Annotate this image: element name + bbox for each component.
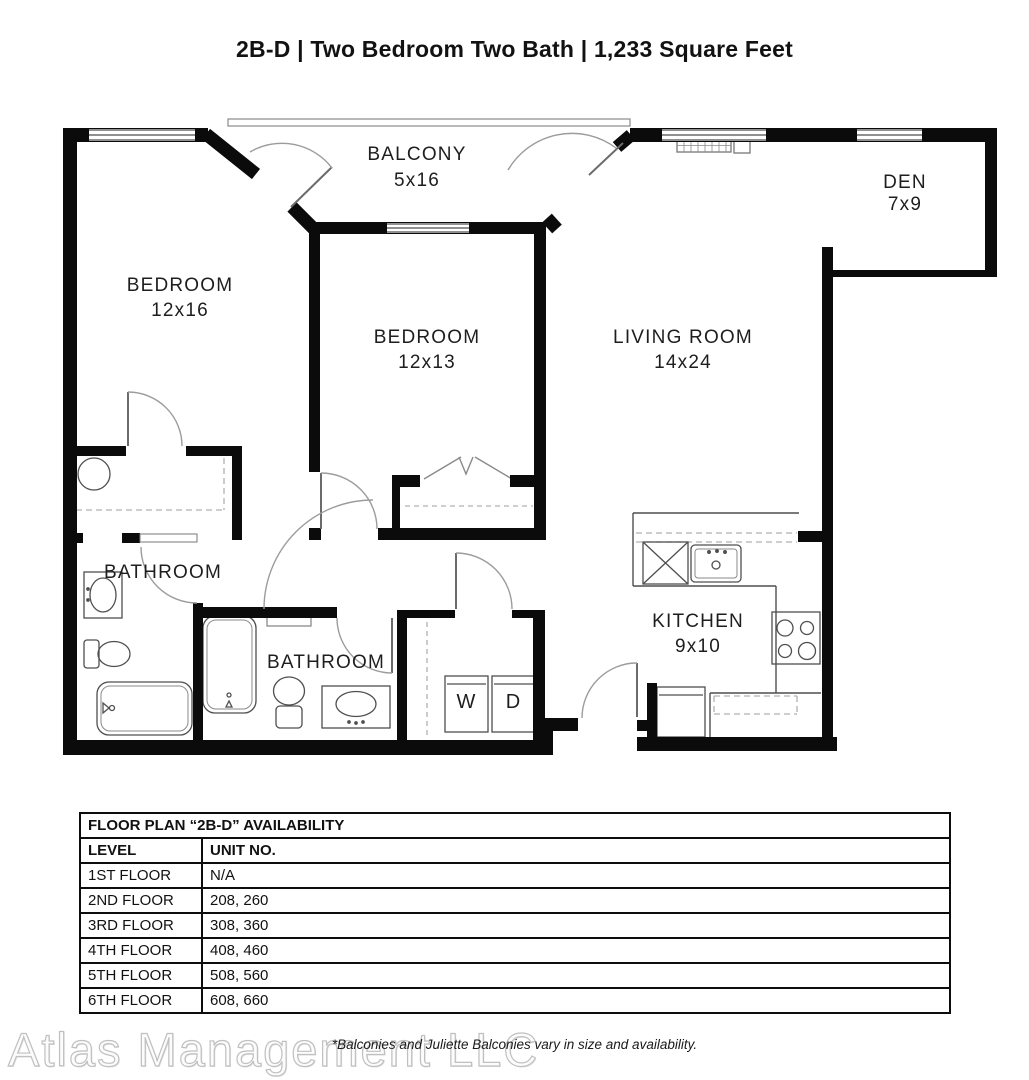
label-den-name: DEN [883,172,927,193]
unit-no-cell: 408, 460 [202,938,950,963]
bath2-toilet-bowl [274,677,305,705]
unit-no-cell: 208, 260 [202,888,950,913]
laundry-door-arc [456,553,512,609]
table-row: 6TH FLOOR608, 660 [80,988,950,1013]
unit-no-cell: N/A [202,863,950,888]
table-title: FLOOR PLAN “2B-D” AVAILABILITY [80,813,950,838]
label-washer: W [457,691,476,713]
label-kitchen-name: KITCHEN [652,611,744,632]
label-balcony-name: BALCONY [367,144,466,165]
floor-plan-page: 2B-D | Two Bedroom Two Bath | 1,233 Squa… [0,0,1029,1080]
unit-no-cell: 508, 560 [202,963,950,988]
table-row: 4TH FLOOR408, 460 [80,938,950,963]
label-living-dims: 14x24 [654,352,712,373]
window-bedroom1 [86,129,198,141]
bath1-tub [97,682,192,735]
footnote: *Balconies and Juliette Balconies vary i… [0,1037,1029,1052]
label-bedroom1-name: BEDROOM [127,275,234,296]
label-bathroom2: BATHROOM [267,652,385,673]
column-header-level: LEVEL [80,838,202,863]
table-title-row: FLOOR PLAN “2B-D” AVAILABILITY [80,813,950,838]
table-row: 2ND FLOOR208, 260 [80,888,950,913]
table-row: 1ST FLOORN/A [80,863,950,888]
level-cell: 3RD FLOOR [80,913,202,938]
label-bedroom2-name: BEDROOM [374,327,481,348]
label-living-name: LIVING ROOM [613,327,753,348]
level-cell: 5TH FLOOR [80,963,202,988]
bath2-tub [203,616,256,713]
window-den [854,129,925,141]
column-header-unit-no: UNIT NO. [202,838,950,863]
window-living-1 [659,129,769,141]
bath2-toilet-tank [276,706,302,728]
balcony-railing [228,119,630,126]
bath2-sink [336,692,376,717]
bath1-door-jamb [140,534,197,542]
bedroom1-door-arc [128,392,182,446]
balcony-left-door-arc [250,143,332,168]
level-cell: 4TH FLOOR [80,938,202,963]
bath1-sink [90,578,116,612]
table-row: 5TH FLOOR508, 560 [80,963,950,988]
availability-table: FLOOR PLAN “2B-D” AVAILABILITY LEVEL UNI… [79,812,951,1014]
closet-shelf-dashed [76,458,226,510]
table-row: 3RD FLOOR308, 360 [80,913,950,938]
bed2-closet-bifold [424,457,512,479]
label-dryer: D [506,691,520,713]
entry-door-arc [582,663,637,718]
level-cell: 2ND FLOOR [80,888,202,913]
label-den-dims: 7x9 [888,194,922,215]
level-cell: 6TH FLOOR [80,988,202,1013]
unit-no-cell: 608, 660 [202,988,950,1013]
label-kitchen-dims: 9x10 [675,636,721,657]
bath2-shelf [267,617,311,626]
window-bedroom2 [384,223,472,233]
hall-door-arc [264,500,373,609]
label-bedroom1-dims: 12x16 [151,300,209,321]
table-header-row: LEVEL UNIT NO. [80,838,950,863]
unit-no-cell: 308, 360 [202,913,950,938]
label-bedroom2-dims: 12x13 [398,352,456,373]
label-bathroom1: BATHROOM [104,562,222,583]
kitchen-stove [772,612,820,664]
bath1-toilet-bowl [98,642,130,667]
door-arcs [128,133,637,718]
bath1-toilet-tank [84,640,99,668]
floor-plan-drawing: BEDROOM 12x16 BALCONY 5x16 DEN 7x9 BEDRO… [0,0,1029,790]
bedroom2-door-arc [321,473,377,529]
label-balcony-dims: 5x16 [394,170,440,191]
level-cell: 1ST FLOOR [80,863,202,888]
closet-stool [78,458,110,490]
